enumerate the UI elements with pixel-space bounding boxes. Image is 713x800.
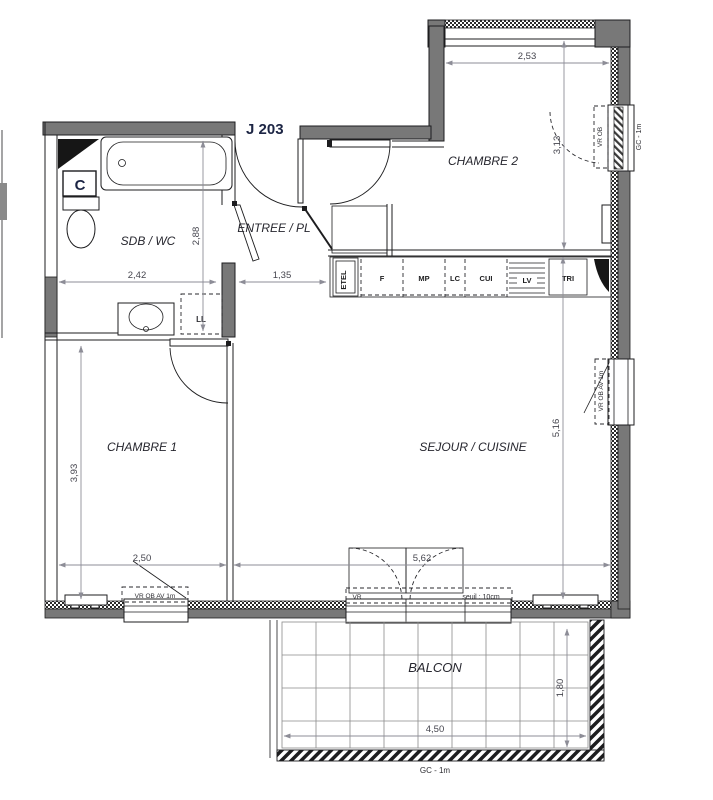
dim-balcon-width: 4,50 <box>426 724 445 735</box>
bathtub <box>101 137 232 190</box>
chambre2-window-label: VR OB <box>597 127 604 147</box>
kitchen-mp-label: MP <box>418 274 429 283</box>
kitchen-lv-label: LV <box>522 276 531 285</box>
threshold-label: seuil : 10cm <box>462 594 500 601</box>
dim-chambre2-height: 3,13 <box>552 136 563 155</box>
entrance-door <box>235 139 303 207</box>
duct-black-triangle <box>58 139 99 169</box>
balcon-guardrail-label: GC - 1m <box>420 766 451 775</box>
floor-plan-drawing: C LL ETEL <box>0 0 713 800</box>
chambre2-door <box>327 140 390 204</box>
room-labels: J 203 SDB / WC ENTREE / PL CHAMBRE 2 CHA… <box>107 121 528 675</box>
sejour-window-label: VR OB AV 1m <box>598 371 605 412</box>
chambre1-window: VR OB AV 1m <box>122 561 188 622</box>
dim-balcon-depth: 1,80 <box>555 679 566 698</box>
dim-chambre1-width: 2,50 <box>133 553 152 564</box>
balcony: GC - 1m <box>270 620 604 775</box>
dim-chambre1-height: 3,93 <box>69 464 80 483</box>
dim-sdb-height: 2,88 <box>191 227 202 246</box>
unit-title: J 203 <box>246 121 284 138</box>
balcony-rail-right <box>590 620 604 760</box>
column-c-box: C <box>63 171 96 196</box>
chambre1-window-label: VR OB AV 1m <box>135 593 176 600</box>
dim-chambre2-width: 2,53 <box>518 51 537 62</box>
dim-sejour-height: 5,16 <box>551 419 562 438</box>
kitchen-lc-label: LC <box>450 274 461 283</box>
room-entree-label: ENTREE / PL <box>237 221 310 235</box>
kitchen-counter: ETEL F MP LC CUI LV TRI <box>330 257 611 297</box>
sink <box>118 303 174 335</box>
room-sejour-label: SEJOUR / CUISINE <box>419 440 527 454</box>
dim-sdb-width: 2,42 <box>128 270 147 281</box>
washing-machine: LL <box>181 294 222 334</box>
dim-entree-width: 1,35 <box>273 270 292 281</box>
room-chambre2-label: CHAMBRE 2 <box>448 154 518 168</box>
sejour-door-vr-label: VR <box>352 594 361 601</box>
chambre2-guardrail-label: GC - 1m <box>636 124 643 151</box>
floor-plan-page: C LL ETEL <box>0 0 713 800</box>
washing-machine-label: LL <box>196 315 206 324</box>
exterior-walls <box>0 20 630 618</box>
kitchen-cui-label: CUI <box>480 274 493 283</box>
kitchen-duct <box>594 259 609 292</box>
toilet <box>63 197 99 248</box>
column-c-label: C <box>75 177 86 194</box>
dim-sejour-width: 5,62 <box>413 553 432 564</box>
kitchen-tri-label: TRI <box>562 274 574 283</box>
interior-walls <box>45 135 612 601</box>
sejour-window: VR OB AV 1m <box>584 359 634 425</box>
room-sdb-label: SDB / WC <box>121 234 176 248</box>
kitchen-f-label: F <box>380 274 385 283</box>
closet-pl <box>302 206 387 253</box>
chambre1-door <box>170 339 231 403</box>
radiator-chambre2 <box>602 205 611 243</box>
radiators <box>65 205 611 608</box>
room-balcon-label: BALCON <box>408 660 462 675</box>
kitchen-etel-label: ETEL <box>339 270 348 290</box>
balcony-rail-bottom <box>277 750 604 761</box>
room-chambre1-label: CHAMBRE 1 <box>107 440 177 454</box>
